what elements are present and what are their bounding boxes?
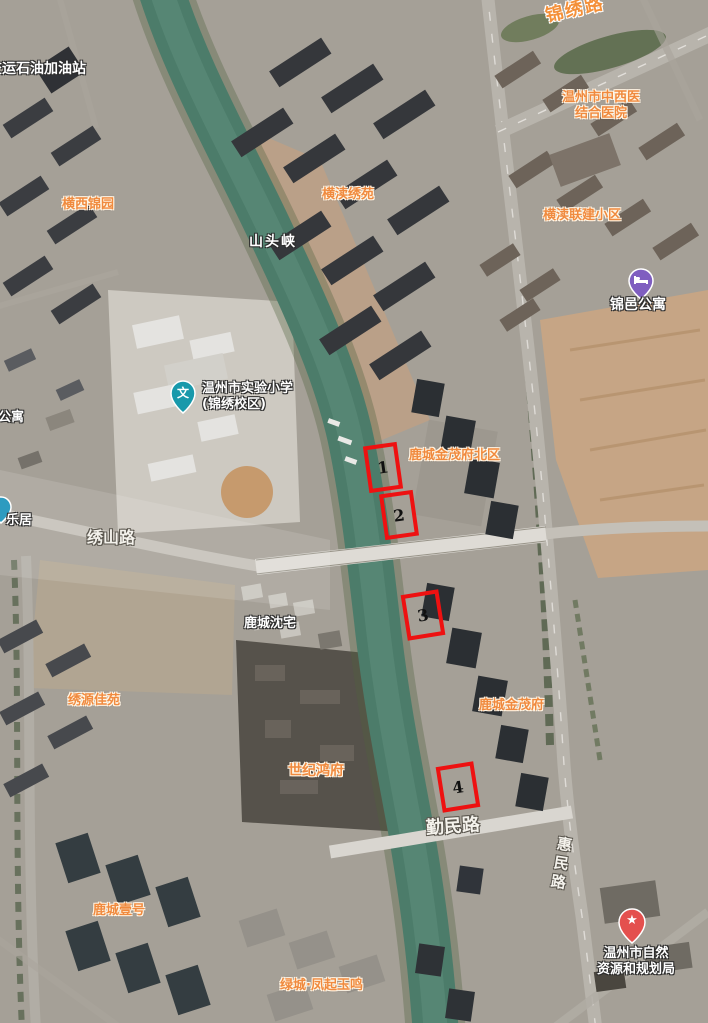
- poi-label-jinyi-gongyu[interactable]: 锦邑公寓: [610, 297, 666, 315]
- poi-label-hengdu-lianjian[interactable]: 横渎联建小区: [543, 208, 621, 224]
- poi-label-government[interactable]: 温州市自然 资源和规划局: [584, 946, 688, 979]
- poi-label-gongyu[interactable]: 公寓: [0, 410, 24, 426]
- hospital-line1: 温州市中西医: [541, 90, 661, 106]
- star-icon: ★: [618, 913, 646, 928]
- poi-label-leju[interactable]: 乐居: [6, 513, 32, 529]
- annotation-box-2-number: 2: [392, 505, 406, 525]
- annotation-box-1-number: 1: [376, 457, 390, 477]
- poi-label-hengdu-xiuyuan[interactable]: 横渎绣苑: [322, 187, 374, 203]
- map-viewport[interactable]: 文 ★ 1 2 3 4 锦绣路 绣山路: [0, 0, 708, 1023]
- gov-line1: 温州市自然: [584, 946, 688, 962]
- school-line2: (锦绣校区): [202, 397, 293, 413]
- annotation-box-1[interactable]: 1: [363, 442, 403, 493]
- annotation-box-2[interactable]: 2: [379, 490, 419, 540]
- annotation-box-3-number: 3: [416, 605, 430, 626]
- poi-label-shantouxia[interactable]: 山头峡: [249, 234, 297, 252]
- gov-line2: 资源和规划局: [584, 962, 688, 978]
- annotation-box-4[interactable]: 4: [436, 761, 481, 812]
- bed-icon: [628, 268, 654, 300]
- poi-label-jinmaofu-north[interactable]: 鹿城金茂府北区: [409, 448, 500, 464]
- poi-label-lucheng-yihao[interactable]: 鹿城壹号: [93, 903, 145, 919]
- school-pin-glyph: 文: [170, 384, 196, 401]
- poi-label-gas-station[interactable]: 交运石油加油站: [0, 61, 86, 79]
- road-label-qinmin: 勤民路: [425, 814, 480, 840]
- school-line1: 温州市实验小学: [202, 381, 293, 397]
- apartment-pin[interactable]: [628, 268, 654, 300]
- poi-label-school[interactable]: 温州市实验小学 (锦绣校区): [202, 381, 293, 414]
- poi-label-shiji-hongfu[interactable]: 世纪鸿府: [288, 763, 344, 781]
- hospital-line2: 结合医院: [541, 106, 661, 122]
- poi-label-xiuyuan-jiayuan[interactable]: 绣源佳苑: [68, 693, 120, 709]
- poi-label-lvcheng-fengqi[interactable]: 绿城·凤起玉鸣: [280, 978, 363, 994]
- government-pin[interactable]: ★: [618, 908, 646, 944]
- poi-label-lucheng-shenzhai[interactable]: 鹿城沈宅: [244, 616, 296, 632]
- poi-label-hospital[interactable]: 温州市中西医 结合医院: [541, 90, 661, 123]
- poi-label-hengxi-jinyuan[interactable]: 横西锦园: [62, 197, 114, 213]
- school-pin[interactable]: 文: [170, 380, 196, 414]
- annotation-box-4-number: 4: [451, 777, 465, 798]
- road-label-xiushan: 绣山路: [87, 528, 135, 548]
- satellite-basemap[interactable]: [0, 0, 708, 1023]
- annotation-box-3[interactable]: 3: [401, 589, 446, 640]
- poi-label-lucheng-jinmaofu[interactable]: 鹿城金茂府: [479, 698, 544, 714]
